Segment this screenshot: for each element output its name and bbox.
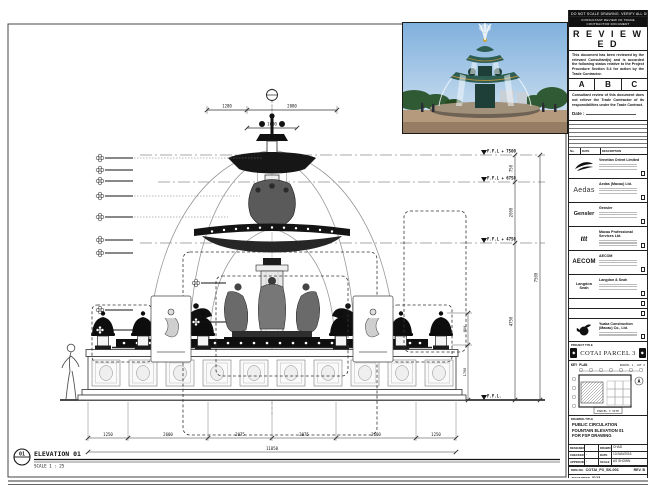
scale-label: SCALE — [599, 459, 612, 466]
consultant-name: Yuaka Construction (Macau) Co., Ltd. — [599, 322, 645, 330]
svg-text:F.F.L.: F.F.L. — [487, 394, 501, 399]
langdon-seah-logo: Langdon Seah — [571, 277, 597, 296]
ornament-icon: ◆ — [639, 348, 646, 358]
level-markers: F.F.L + 7500 F.F.L + 6750 F.F.L + 4750 F… — [481, 149, 516, 401]
address-text-placeholder — [599, 284, 637, 285]
ornament-icon: ◆ — [570, 348, 577, 358]
consultant-checkbox — [641, 195, 646, 200]
drawn-value: CHAD — [612, 445, 647, 452]
approval-table: DESIGNED DRAWN CHAD CHECKED - DATE 12/JA… — [568, 444, 648, 467]
middle-bowl-tier — [194, 224, 350, 272]
address-text-placeholder — [599, 289, 637, 290]
contractor-bird-logo-icon — [571, 321, 597, 339]
svg-text:F.F.L + 7500: F.F.L + 7500 — [487, 149, 516, 154]
stamp-date-label: Date : — [572, 111, 585, 116]
drawing-title-line-3: FOR FSP DRAWING — [572, 433, 644, 439]
consultant-name: Gensler — [599, 206, 645, 210]
address-text-placeholder — [599, 240, 637, 241]
statue-group — [224, 271, 320, 342]
consultant-name: Macau Professional Services Ltd. — [599, 230, 645, 238]
svg-text:SCALE 1 : 25: SCALE 1 : 25 — [34, 464, 65, 469]
stamp-body-1: This document has been reviewed by the r… — [569, 51, 647, 78]
checked-label: CHECKED — [569, 452, 585, 459]
svg-text:01: 01 — [19, 452, 25, 458]
right-dimension-chains: 750 2000 4750 7500 950 1700 — [447, 153, 542, 402]
svg-text:2000: 2000 — [509, 207, 514, 217]
consultant-checkbox — [641, 243, 646, 248]
consultant-name: AECOM — [599, 254, 645, 258]
drawing-title-block: DRAWING TITLE PUBLIC CIRCULATION FOUNTAI… — [568, 415, 648, 445]
hatched-building — [581, 382, 603, 403]
address-text-placeholder — [599, 190, 637, 191]
photo-plaza-shadow — [402, 122, 568, 134]
contractor-row: Yuaka Construction (Macau) Co., Ltd. — [568, 318, 648, 342]
project-name: COTAI PARCEL 3 — [580, 350, 636, 357]
sands-swoosh-logo-icon — [571, 157, 597, 176]
approved-label: APPROVED — [569, 459, 585, 466]
address-text-placeholder — [599, 212, 637, 213]
scale-figure — [62, 344, 79, 399]
svg-text:F.F.L + 4750: F.F.L + 4750 — [487, 237, 516, 242]
scale-value: AS SHOWN — [612, 459, 647, 466]
address-text-placeholder — [599, 245, 637, 246]
drawing-sheet: 1280 2880 1600 — [0, 0, 650, 488]
consultant-name: Venetian Orient Limited — [599, 158, 645, 162]
job-number-value: 3123 — [592, 476, 600, 478]
svg-text:2600: 2600 — [163, 432, 173, 437]
fountain-finial — [256, 113, 288, 153]
aedas-logo: Aedas — [571, 181, 597, 200]
consultant-checkbox — [641, 301, 646, 306]
address-text-placeholder — [599, 193, 637, 194]
svg-text:2600: 2600 — [371, 432, 381, 437]
address-text-placeholder — [599, 265, 637, 266]
stamp-date-blank-line — [586, 111, 636, 115]
revision-badge: REV. B — [634, 468, 645, 472]
mps-logo: ttt — [571, 229, 597, 248]
consultant-row-qs: Langdon Seah Langdon & Seah — [568, 274, 648, 299]
reviewed-stamp: CONSULTANT REVIEW OF TRADE CONTRACTOR DO… — [568, 16, 648, 121]
svg-text:7500: 7500 — [534, 272, 539, 282]
checked-value: - — [585, 452, 599, 459]
gensler-logo: Gensler — [571, 205, 597, 224]
svg-text:750: 750 — [509, 164, 514, 172]
address-text-placeholder — [599, 164, 637, 165]
project-title-block: PROJECT TITLE ◆ COTAI PARCEL 3 ◆ — [568, 341, 648, 361]
svg-text:PARCEL 3 SITE: PARCEL 3 SITE — [597, 409, 619, 413]
address-text-placeholder — [599, 217, 637, 218]
fountain-photo — [402, 22, 568, 134]
photo-buildings — [500, 90, 527, 104]
address-text-placeholder — [599, 166, 637, 167]
consultant-row-architect: Aedas Aedas (Macau) Ltd. — [568, 178, 648, 203]
designed-label: DESIGNED — [569, 445, 585, 452]
consultant-row-services: ttt Macau Professional Services Ltd. — [568, 226, 648, 251]
consultant-checkbox — [641, 291, 646, 296]
status-c-cell: C — [622, 79, 647, 90]
stamp-date-row: Date : — [569, 109, 647, 120]
status-a-cell: A — [569, 79, 595, 90]
svg-text:1280: 1280 — [222, 104, 232, 109]
stamp-header: CONSULTANT REVIEW OF TRADE CONTRACTOR DO… — [569, 17, 647, 27]
address-text-placeholder — [599, 242, 637, 243]
approved-value: - — [585, 459, 599, 466]
svg-text:PARCEL 1, LOT 2: PARCEL 1, LOT 2 — [620, 363, 646, 367]
address-text-placeholder — [599, 260, 637, 261]
consultant-checkbox — [641, 219, 646, 224]
consultant-checkbox — [641, 267, 646, 272]
upper-bowl-tier — [228, 152, 316, 228]
address-text-placeholder — [599, 286, 637, 287]
drawn-label: DRAWN — [599, 445, 612, 452]
address-text-placeholder — [599, 188, 637, 189]
key-plan-block: KEY PLAN PARCEL 1, LOT 2 P — [568, 360, 648, 416]
svg-text:4750: 4750 — [509, 316, 514, 326]
svg-text:ELEVATION 01: ELEVATION 01 — [34, 450, 81, 458]
designed-value — [585, 445, 599, 452]
svg-text:KEY PLAN: KEY PLAN — [571, 363, 587, 367]
status-b-cell: B — [595, 79, 621, 90]
consultant-row-developer: Venetian Orient Limited — [568, 154, 648, 179]
stamp-body-2: Consultant review of this document does … — [569, 91, 647, 109]
consultant-name: Aedas (Macau) Ltd. — [599, 182, 645, 186]
svg-text:1250: 1250 — [431, 432, 441, 437]
svg-text:2075: 2075 — [235, 432, 245, 437]
svg-text:2075: 2075 — [299, 432, 309, 437]
title-block-column: DO NOT SCALE DRAWING. VERIFY ALL DIMENSI… — [568, 10, 648, 478]
detail-marker — [267, 90, 278, 113]
date-label: DATE — [599, 452, 612, 459]
svg-text:1700: 1700 — [463, 368, 467, 377]
north-needle — [638, 378, 641, 383]
job-number-label: JOB NUMBER — [571, 476, 590, 478]
stamp-status-row: A B C — [569, 78, 647, 91]
plan-grid — [607, 381, 631, 405]
address-text-placeholder — [599, 332, 637, 333]
dwg-number-label: DWG NO. — [571, 468, 584, 472]
address-text-placeholder — [599, 214, 637, 215]
consultant-name: Langdon & Seah — [599, 278, 645, 282]
consultant-row-engineer: AECOM AECOM — [568, 250, 648, 275]
revision-table: No. DATE DESCRIPTION — [568, 120, 648, 155]
svg-text:F.F.L + 6750: F.F.L + 6750 — [487, 176, 516, 181]
address-text-placeholder — [599, 334, 637, 335]
bottom-dimension-chains: 1250 2600 2075 2075 2600 1250 11850 — [86, 402, 458, 454]
pool-wall — [78, 350, 466, 401]
consultant-row-designer: Gensler Gensler — [568, 202, 648, 227]
fountain-photo-image — [402, 22, 568, 134]
consultant-checkbox — [641, 311, 646, 316]
consultant-checkbox — [641, 171, 646, 176]
svg-text:950: 950 — [463, 326, 467, 333]
address-text-placeholder — [599, 169, 637, 170]
address-text-placeholder — [599, 262, 637, 263]
svg-text:1250: 1250 — [103, 432, 113, 437]
dwg-number-value: COTAI_P3_SK-001 — [586, 468, 619, 472]
date-value: 12/JAN/2016 — [612, 452, 647, 459]
aecom-logo: AECOM — [571, 253, 597, 272]
consultant-checkbox — [641, 334, 646, 339]
svg-text:11850: 11850 — [266, 446, 279, 451]
key-plan-map: KEY PLAN PARCEL 1, LOT 2 P — [569, 361, 647, 415]
svg-text:2880: 2880 — [287, 104, 297, 109]
stamp-title: R E V I E W E D — [569, 27, 647, 51]
job-number-row: JOB NUMBER 3123 — [568, 474, 648, 478]
